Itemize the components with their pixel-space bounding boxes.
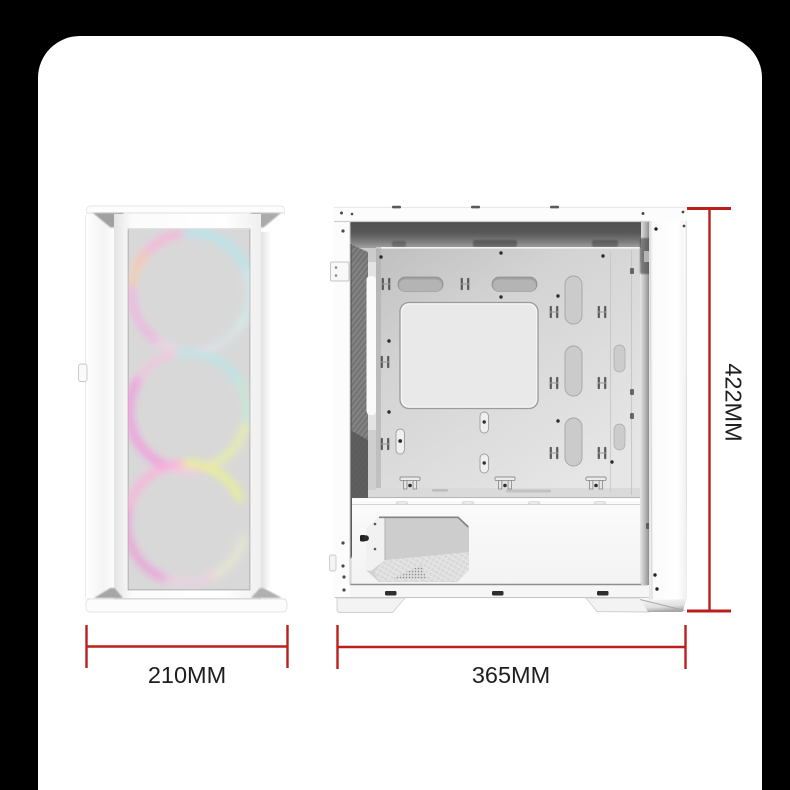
svg-text:210MM: 210MM	[148, 662, 226, 688]
svg-text:422MM: 422MM	[721, 363, 747, 441]
svg-text:365MM: 365MM	[472, 662, 550, 688]
